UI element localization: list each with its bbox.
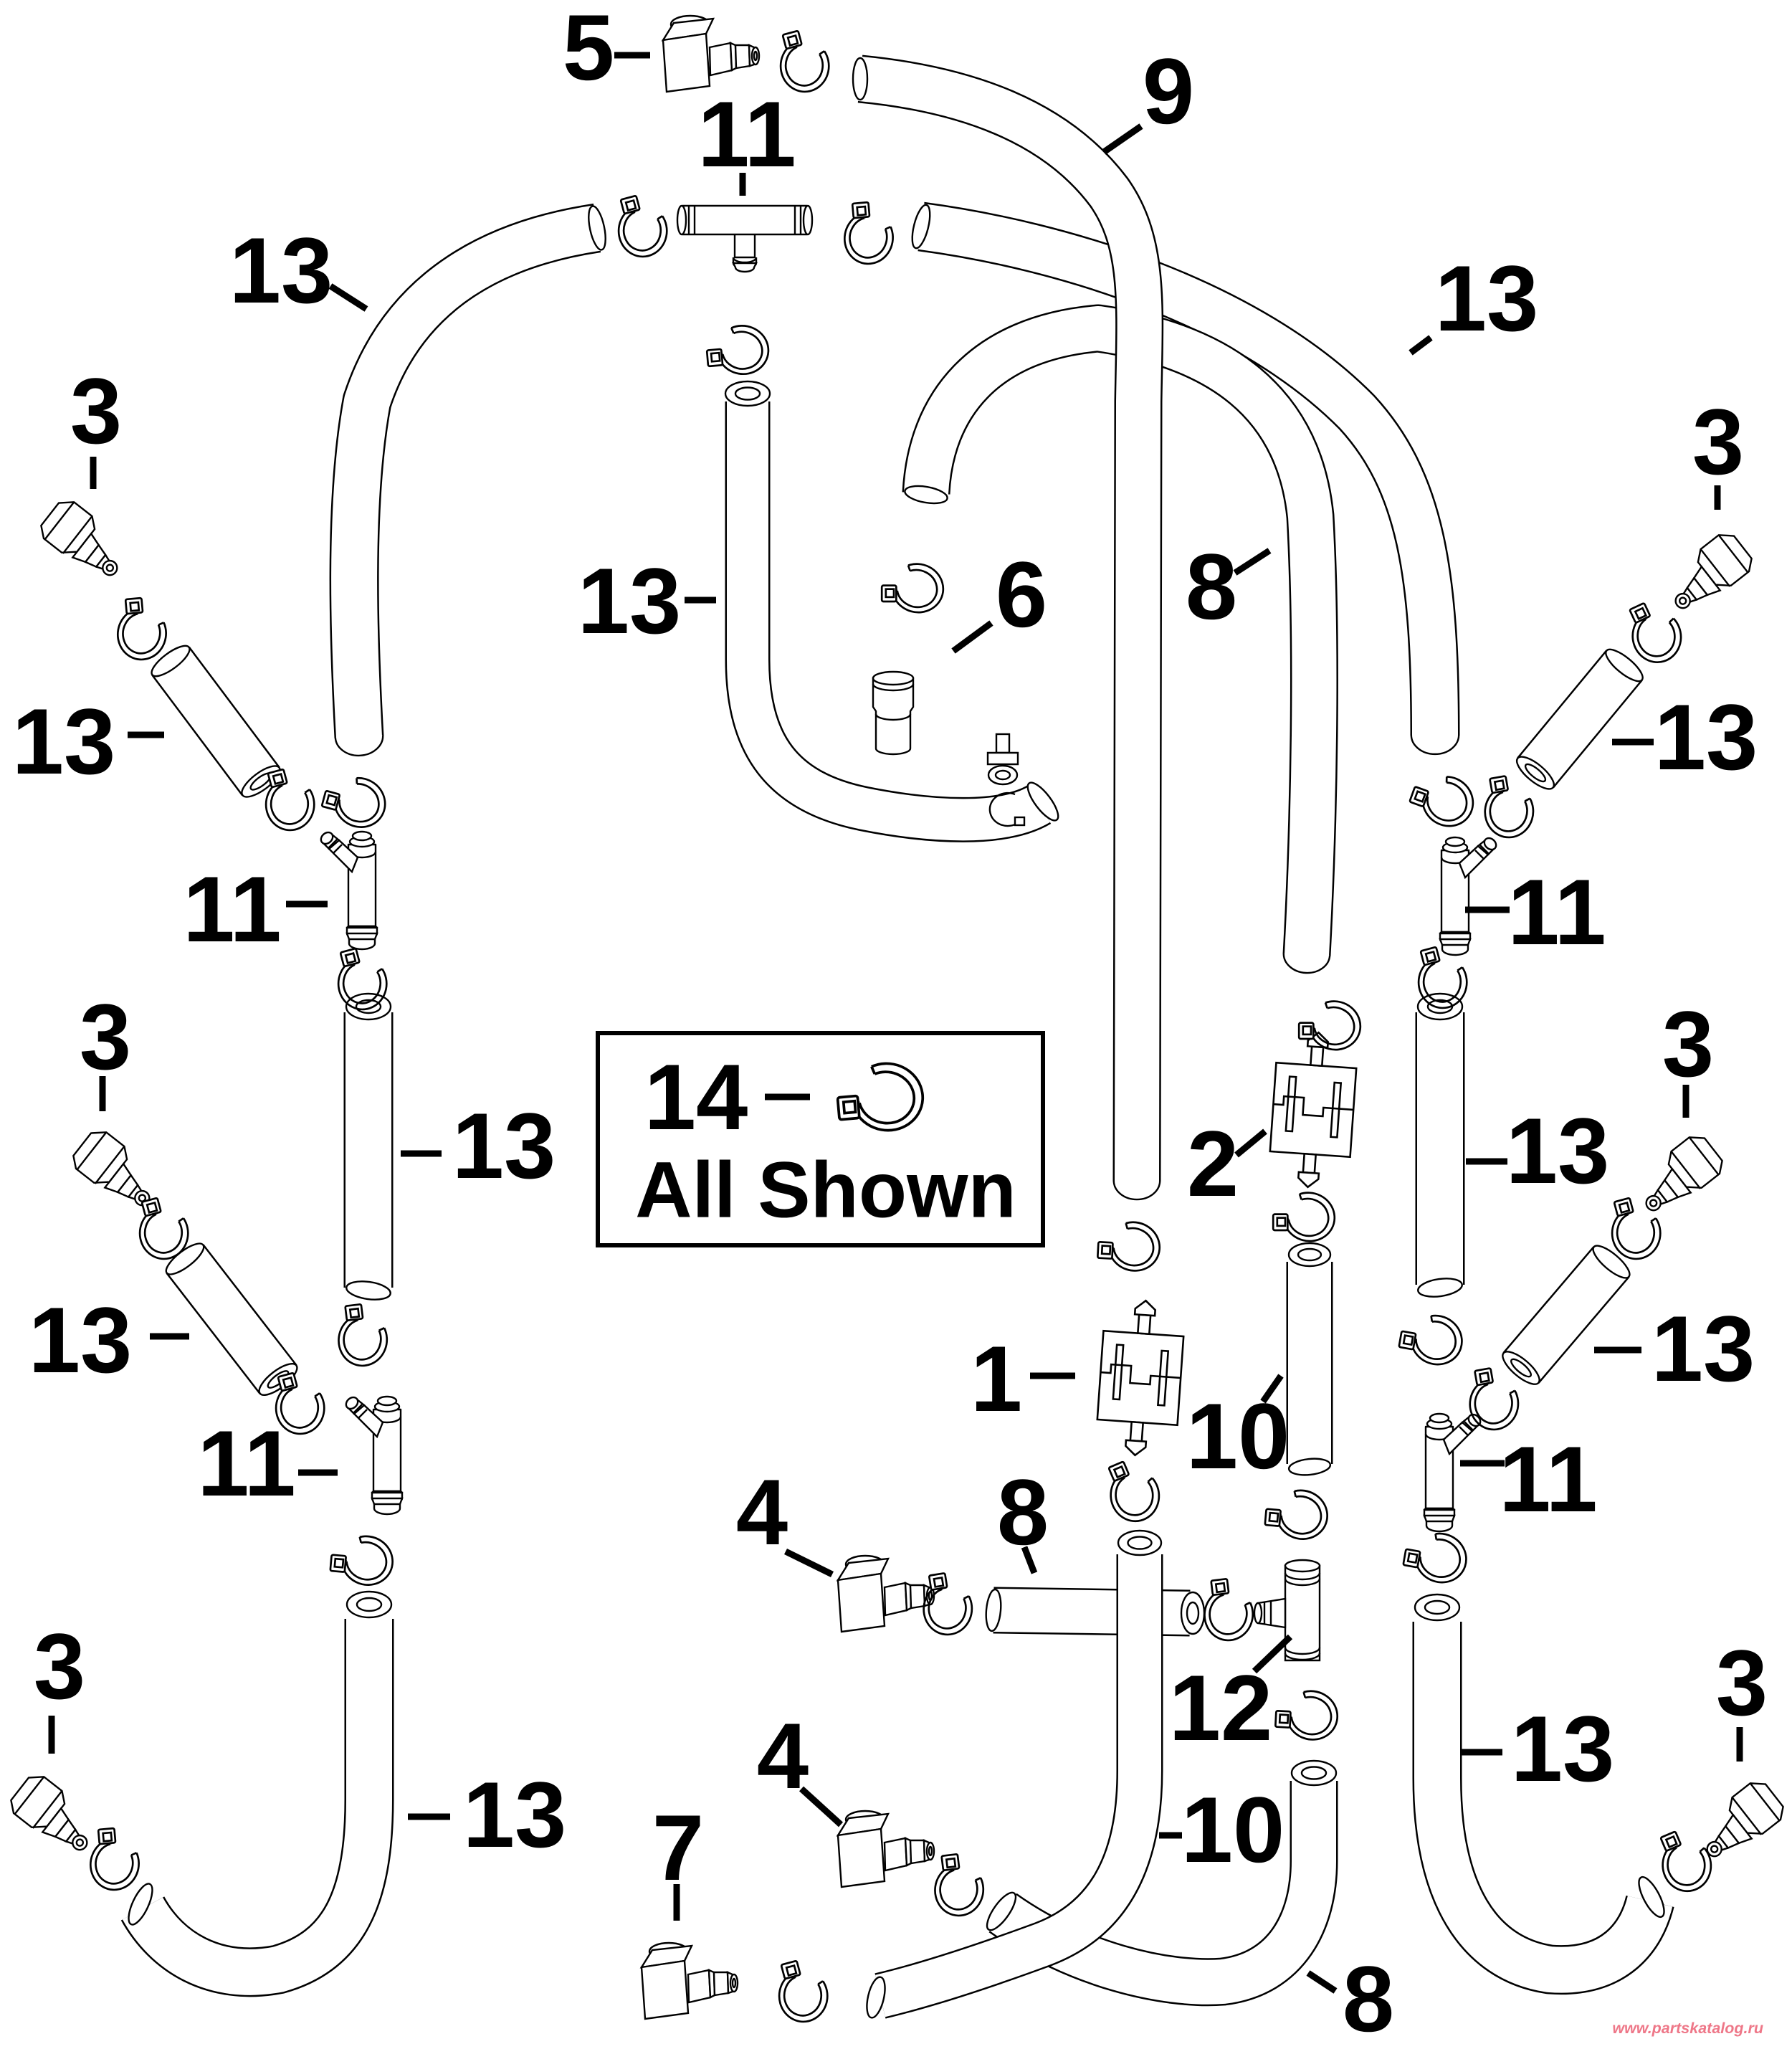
svg-text:5: 5 [563, 0, 614, 100]
svg-text:8: 8 [1186, 534, 1237, 639]
svg-text:3: 3 [80, 984, 131, 1089]
svg-text:6: 6 [996, 542, 1047, 647]
svg-text:3: 3 [1716, 1630, 1768, 1735]
svg-text:11: 11 [197, 1411, 295, 1516]
svg-text:13: 13 [29, 1288, 133, 1392]
svg-text:13: 13 [578, 548, 682, 653]
svg-text:11: 11 [1499, 1427, 1597, 1531]
svg-text:3: 3 [1662, 992, 1714, 1096]
svg-text:2: 2 [1187, 1111, 1239, 1216]
svg-text:13: 13 [229, 218, 333, 323]
svg-text:9: 9 [1143, 39, 1194, 143]
svg-text:13: 13 [1435, 246, 1539, 351]
svg-text:13: 13 [1654, 685, 1758, 789]
svg-text:13: 13 [452, 1093, 556, 1198]
svg-text:3: 3 [1692, 389, 1744, 494]
svg-text:8: 8 [1343, 1946, 1394, 2049]
svg-text:3: 3 [70, 358, 122, 463]
svg-text:1: 1 [971, 1326, 1022, 1431]
svg-text:All Shown: All Shown [635, 1146, 1016, 1235]
svg-text:14: 14 [644, 1045, 748, 1149]
svg-text:11: 11 [183, 857, 281, 961]
svg-text:13: 13 [12, 689, 116, 794]
svg-text:13: 13 [463, 1762, 567, 1867]
svg-text:13: 13 [1511, 1696, 1615, 1801]
svg-text:4: 4 [736, 1460, 788, 1564]
svg-text:3: 3 [34, 1614, 85, 1718]
svg-text:13: 13 [1652, 1296, 1755, 1401]
svg-text:10: 10 [1186, 1384, 1290, 1488]
svg-text:www.partskatalog.ru: www.partskatalog.ru [1612, 2020, 1763, 2037]
svg-text:11: 11 [1507, 860, 1606, 964]
svg-text:11: 11 [697, 82, 796, 186]
svg-text:10: 10 [1181, 1777, 1285, 1882]
svg-text:13: 13 [1506, 1098, 1610, 1203]
